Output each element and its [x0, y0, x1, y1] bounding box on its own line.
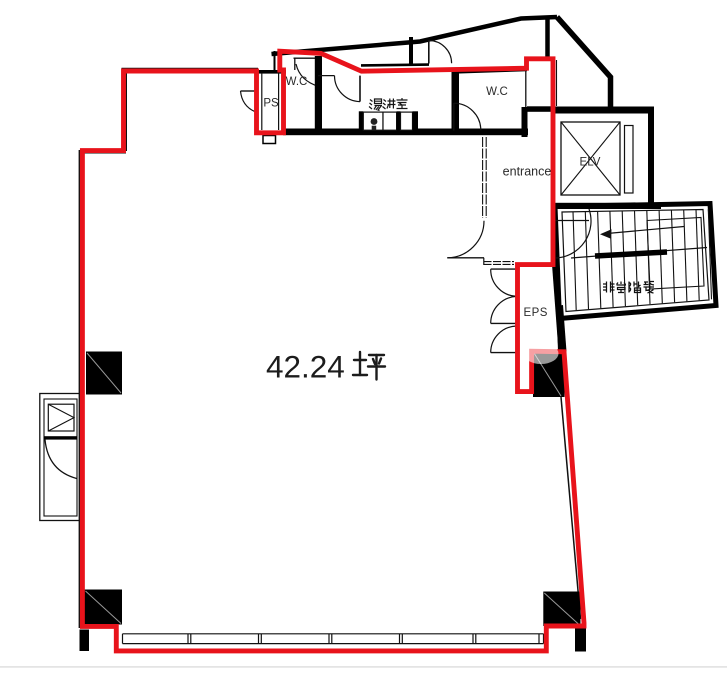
svg-text:EPS: EPS [523, 307, 548, 319]
svg-text:PS: PS [263, 98, 279, 110]
svg-text:42.24: 42.24 [266, 349, 345, 385]
svg-text:W.C: W.C [286, 76, 308, 88]
svg-text:entrance: entrance [503, 165, 552, 179]
svg-text:W.C: W.C [486, 86, 508, 98]
svg-text:ELV: ELV [580, 157, 601, 169]
